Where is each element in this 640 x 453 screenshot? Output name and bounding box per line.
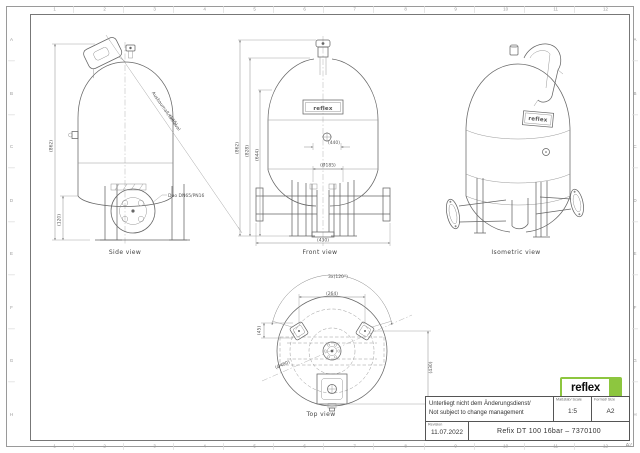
- front-dim-height3: (644): [255, 149, 261, 161]
- front-dim-height2: (828): [245, 145, 251, 157]
- front-dim-total-height: (862): [235, 142, 241, 154]
- note-line-en: Not subject to change management: [429, 409, 553, 418]
- reflex-logo-text: reflex: [562, 379, 609, 396]
- isometric-view: reflex Isometric view: [430, 32, 605, 262]
- isometric-view-label: Isometric view: [491, 249, 540, 256]
- side-view-dimensions: (862) (120) Duo DN65/PN16 Ausbaumaß/remo…: [49, 35, 243, 240]
- grid-column-label: 5: [237, 443, 275, 450]
- front-nameplate-text: reflex: [313, 106, 332, 112]
- grid-row-label: G: [632, 342, 638, 382]
- grid-row-label: D: [8, 181, 15, 221]
- grid-row-label: H: [632, 395, 638, 434]
- scale-cell: Maßstab/ Scale 1:5: [554, 397, 592, 421]
- isometric-vessel: reflex: [444, 44, 586, 237]
- grid-rows-right: ABCDEFGH: [631, 14, 639, 441]
- grid-row-label: C: [8, 128, 15, 168]
- side-connection-label: Duo DN65/PN16: [168, 193, 205, 199]
- revision-label: Revision: [428, 423, 442, 427]
- scale-value: 1:5: [554, 408, 591, 415]
- sheet-format-corner-label: A2: [610, 443, 632, 448]
- front-view-vessel: reflex: [256, 36, 390, 246]
- grid-row-label: A: [8, 21, 15, 61]
- format-cell: Format/ Size A2: [592, 397, 629, 421]
- grid-row-label: B: [8, 74, 15, 114]
- side-diagonal-note: Ausbaumaß/removal: [150, 91, 182, 133]
- grid-column-label: 6: [287, 443, 325, 450]
- top-dim-feet: (264): [326, 291, 338, 297]
- top-view-label: Top view: [305, 411, 335, 418]
- top-view: (Ø480) 3x(120°) (264) (45) (430) Top vie…: [238, 264, 438, 422]
- grid-column-label: 9: [437, 443, 475, 450]
- side-dim-height: (862): [49, 140, 55, 152]
- front-view: reflex (862) (828) (644) (440) (Ø185) (4…: [230, 28, 405, 263]
- top-view-dimensions: (Ø480) 3x(120°) (264) (45) (430): [257, 274, 435, 404]
- front-view-label: Front view: [303, 249, 338, 256]
- revision-cell: Revision 11.07.2022: [426, 422, 469, 440]
- front-dim-width: (430): [317, 238, 329, 244]
- side-dim-base: (120): [57, 214, 63, 226]
- grid-row-label: C: [632, 128, 638, 168]
- top-dim-depth: (430): [428, 361, 434, 373]
- drawing-title: Refix DT 100 16bar – 7370100: [469, 422, 629, 440]
- grid-column-label: 2: [86, 443, 124, 450]
- grid-row-label: F: [8, 288, 15, 328]
- iso-nameplate-text: reflex: [528, 116, 548, 124]
- scale-label: Maßstab/ Scale: [556, 398, 582, 402]
- reflex-logo: reflex: [560, 377, 622, 398]
- grid-row-label: E: [632, 235, 638, 275]
- grid-row-label: B: [632, 74, 638, 114]
- title-block: Unterliegt nicht dem Änderungsdienst/ No…: [425, 396, 630, 441]
- grid-row-label: E: [8, 235, 15, 275]
- grid-column-label: 3: [136, 443, 174, 450]
- change-management-note: Unterliegt nicht dem Änderungsdienst/ No…: [426, 397, 554, 421]
- top-dim-angle: 3x(120°): [328, 274, 348, 280]
- format-value: A2: [592, 408, 629, 415]
- grid-column-label: 11: [537, 443, 575, 450]
- grid-column-label: 8: [387, 6, 425, 13]
- grid-column-label: 5: [237, 6, 275, 13]
- grid-column-label: 2: [86, 6, 124, 13]
- front-dim-mid: (440): [328, 140, 340, 146]
- grid-column-label: 6: [287, 6, 325, 13]
- grid-column-label: 4: [186, 443, 224, 450]
- grid-column-label: 10: [487, 443, 525, 450]
- grid-column-label: 11: [537, 6, 575, 13]
- grid-row-label: H: [8, 395, 15, 434]
- side-view-vessel: [69, 36, 191, 244]
- grid-column-label: 1: [36, 443, 74, 450]
- grid-column-label: 7: [337, 443, 375, 450]
- top-view-vessel: [262, 296, 412, 411]
- note-line-de: Unterliegt nicht dem Änderungsdienst/: [429, 400, 553, 409]
- front-dim-flange: (Ø185): [320, 162, 336, 169]
- grid-row-label: A: [632, 21, 638, 61]
- top-dim-diameter: (Ø480): [274, 358, 291, 371]
- grid-column-label: 10: [487, 6, 525, 13]
- side-view: (862) (120) Duo DN65/PN16 Ausbaumaß/remo…: [38, 28, 250, 262]
- revision-date: 11.07.2022: [426, 429, 468, 436]
- grid-column-label: 9: [437, 6, 475, 13]
- grid-columns-top: 123456789101112: [30, 5, 630, 14]
- side-view-label: Side view: [109, 249, 141, 256]
- grid-column-label: 7: [337, 6, 375, 13]
- grid-columns-bottom: 123456789101112: [30, 442, 630, 451]
- grid-column-label: 3: [136, 6, 174, 13]
- grid-column-label: 8: [387, 443, 425, 450]
- grid-column-label: 12: [587, 6, 624, 13]
- grid-row-label: D: [632, 181, 638, 221]
- format-label: Format/ Size: [594, 398, 615, 402]
- grid-row-label: G: [8, 342, 15, 382]
- top-dim-foot: (45): [257, 326, 263, 335]
- grid-column-label: 4: [186, 6, 224, 13]
- grid-column-label: 1: [36, 6, 74, 13]
- grid-rows-left: ABCDEFGH: [7, 14, 16, 441]
- grid-row-label: F: [632, 288, 638, 328]
